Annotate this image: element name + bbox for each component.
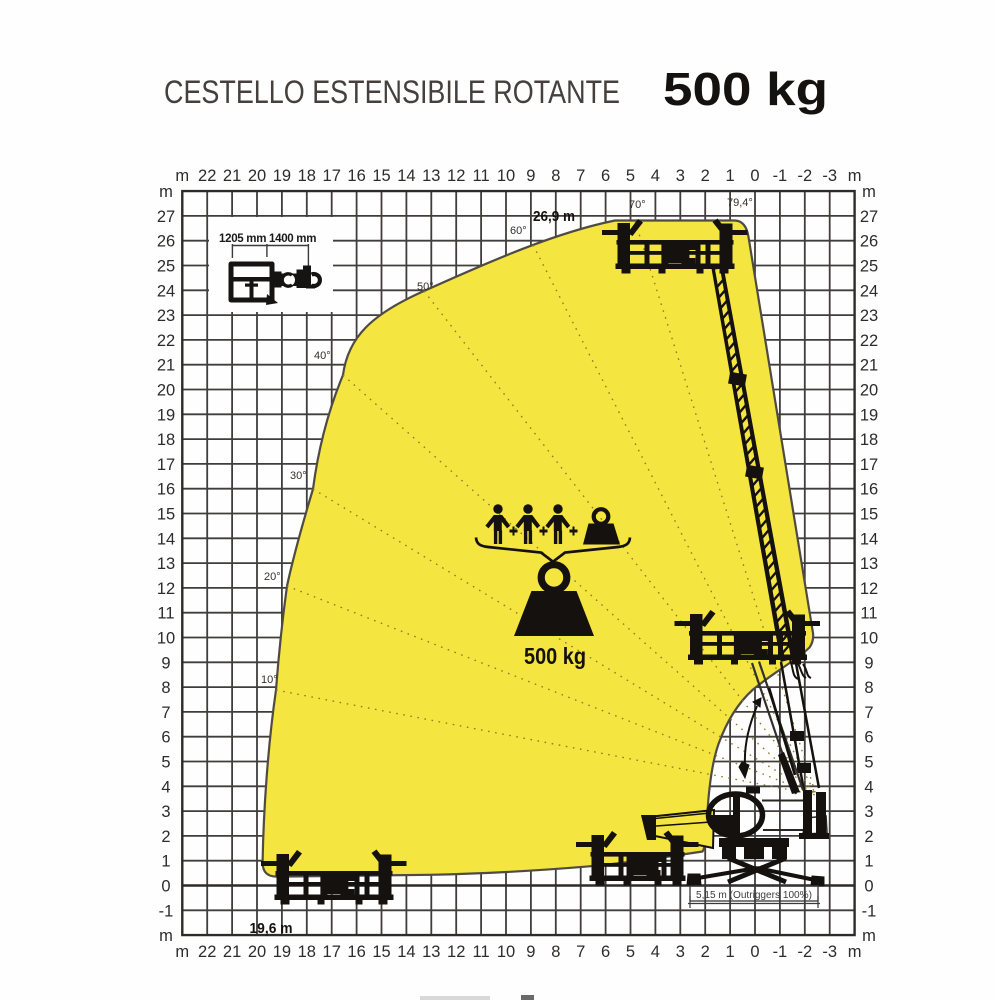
svg-text:m: m <box>175 167 189 185</box>
svg-text:18: 18 <box>298 943 316 961</box>
svg-text:13: 13 <box>860 555 878 573</box>
svg-text:19: 19 <box>860 406 878 424</box>
svg-text:21: 21 <box>223 167 241 185</box>
svg-text:7: 7 <box>576 943 585 961</box>
svg-text:17: 17 <box>157 456 175 474</box>
svg-text:14: 14 <box>397 943 415 961</box>
svg-text:1: 1 <box>726 943 735 961</box>
svg-text:11: 11 <box>473 167 490 185</box>
svg-text:20: 20 <box>860 382 878 400</box>
svg-text:500 kg: 500 kg <box>663 63 828 115</box>
svg-text:22: 22 <box>860 332 878 350</box>
svg-text:4: 4 <box>651 943 660 961</box>
svg-text:4: 4 <box>864 778 873 796</box>
svg-text:5: 5 <box>626 167 635 185</box>
svg-text:m: m <box>862 183 876 201</box>
svg-text:12: 12 <box>447 167 465 185</box>
svg-text:3: 3 <box>676 167 685 185</box>
svg-text:60°: 60° <box>510 225 527 237</box>
svg-text:5: 5 <box>161 754 170 772</box>
svg-text:10: 10 <box>497 943 515 961</box>
svg-text:7: 7 <box>161 704 170 722</box>
svg-text:1: 1 <box>161 853 170 871</box>
svg-text:8: 8 <box>864 679 873 697</box>
svg-text:40°: 40° <box>314 350 331 362</box>
svg-text:25: 25 <box>860 258 878 276</box>
svg-text:8: 8 <box>551 167 560 185</box>
svg-text:21: 21 <box>157 357 175 375</box>
svg-text:11: 11 <box>473 943 490 961</box>
svg-text:3: 3 <box>676 943 685 961</box>
svg-text:21: 21 <box>860 357 878 375</box>
svg-text:m: m <box>848 167 862 185</box>
svg-text:-1: -1 <box>773 943 788 961</box>
svg-text:6: 6 <box>601 167 610 185</box>
svg-text:2: 2 <box>161 828 170 846</box>
svg-text:19: 19 <box>157 406 175 424</box>
svg-text:m: m <box>159 183 173 201</box>
svg-text:20: 20 <box>248 943 266 961</box>
svg-text:5: 5 <box>864 754 873 772</box>
svg-text:10: 10 <box>497 167 515 185</box>
svg-text:9: 9 <box>526 167 535 185</box>
svg-text:21: 21 <box>223 943 241 961</box>
svg-text:0: 0 <box>750 167 759 185</box>
svg-text:0: 0 <box>750 943 759 961</box>
svg-text:23: 23 <box>157 307 175 325</box>
svg-text:1: 1 <box>726 167 735 185</box>
svg-text:-1: -1 <box>773 167 788 185</box>
svg-text:-2: -2 <box>797 167 812 185</box>
svg-text:11: 11 <box>157 605 174 623</box>
svg-text:13: 13 <box>422 943 440 961</box>
svg-text:4: 4 <box>651 167 660 185</box>
svg-text:27: 27 <box>157 208 175 226</box>
svg-text:16: 16 <box>347 943 365 961</box>
svg-text:10: 10 <box>157 630 175 648</box>
svg-text:15: 15 <box>860 506 878 524</box>
svg-text:-3: -3 <box>822 943 837 961</box>
svg-text:19: 19 <box>273 943 291 961</box>
svg-text:30°: 30° <box>290 470 307 482</box>
svg-text:13: 13 <box>157 555 175 573</box>
svg-text:18: 18 <box>860 431 878 449</box>
svg-text:17: 17 <box>323 167 341 185</box>
svg-text:1205 mm 1400 mm: 1205 mm 1400 mm <box>219 233 316 245</box>
svg-text:500 kg: 500 kg <box>524 643 586 669</box>
svg-text:20: 20 <box>248 167 266 185</box>
svg-text:8: 8 <box>551 943 560 961</box>
svg-text:27: 27 <box>860 208 878 226</box>
svg-text:22: 22 <box>198 943 216 961</box>
svg-text:-2: -2 <box>797 943 812 961</box>
svg-text:6: 6 <box>864 729 873 747</box>
svg-text:m: m <box>862 927 876 945</box>
svg-text:-1: -1 <box>862 902 877 920</box>
svg-text:79,4°: 79,4° <box>727 197 753 209</box>
svg-text:2: 2 <box>701 167 710 185</box>
svg-text:-3: -3 <box>822 167 837 185</box>
svg-text:22: 22 <box>198 167 216 185</box>
svg-text:11: 11 <box>860 605 877 623</box>
svg-text:12: 12 <box>157 580 175 598</box>
svg-text:20: 20 <box>157 382 175 400</box>
svg-text:22: 22 <box>157 332 175 350</box>
svg-text:7: 7 <box>576 167 585 185</box>
svg-text:14: 14 <box>397 167 415 185</box>
svg-text:25: 25 <box>157 258 175 276</box>
svg-text:12: 12 <box>860 580 878 598</box>
svg-text:2: 2 <box>864 828 873 846</box>
svg-text:16: 16 <box>157 481 175 499</box>
svg-text:15: 15 <box>372 167 390 185</box>
svg-text:4: 4 <box>161 778 170 796</box>
svg-text:19: 19 <box>273 167 291 185</box>
svg-text:26: 26 <box>157 233 175 251</box>
svg-text:9: 9 <box>864 654 873 672</box>
svg-text:9: 9 <box>526 943 535 961</box>
svg-text:5: 5 <box>626 943 635 961</box>
svg-text:16: 16 <box>347 167 365 185</box>
svg-text:70°: 70° <box>629 199 646 211</box>
svg-text:3: 3 <box>864 803 873 821</box>
svg-text:26,9 m: 26,9 m <box>533 208 575 225</box>
svg-text:0: 0 <box>864 878 873 896</box>
svg-text:17: 17 <box>860 456 878 474</box>
svg-text:26: 26 <box>860 233 878 251</box>
svg-text:-1: -1 <box>159 902 174 920</box>
svg-text:24: 24 <box>157 282 175 300</box>
svg-text:12: 12 <box>447 943 465 961</box>
svg-text:14: 14 <box>860 530 878 548</box>
svg-text:7: 7 <box>864 704 873 722</box>
svg-text:m: m <box>848 943 862 961</box>
svg-text:18: 18 <box>157 431 175 449</box>
svg-text:6: 6 <box>601 943 610 961</box>
svg-text:10°: 10° <box>261 674 278 686</box>
svg-text:50°: 50° <box>417 281 434 293</box>
svg-text:0: 0 <box>161 878 170 896</box>
svg-text:9: 9 <box>161 654 170 672</box>
svg-text:18: 18 <box>298 167 316 185</box>
svg-text:3: 3 <box>161 803 170 821</box>
svg-text:16: 16 <box>860 481 878 499</box>
svg-text:14: 14 <box>157 530 175 548</box>
svg-text:m: m <box>175 943 189 961</box>
svg-text:20°: 20° <box>264 571 281 583</box>
svg-text:10: 10 <box>860 630 878 648</box>
svg-text:1: 1 <box>864 853 873 871</box>
svg-text:8: 8 <box>161 679 170 697</box>
svg-text:m: m <box>159 927 173 945</box>
svg-text:5,15 m (Outriggers 100%): 5,15 m (Outriggers 100%) <box>696 890 812 901</box>
svg-text:13: 13 <box>422 167 440 185</box>
svg-text:6: 6 <box>161 729 170 747</box>
svg-text:15: 15 <box>372 943 390 961</box>
svg-text:CESTELLO ESTENSIBILE ROTANTE: CESTELLO ESTENSIBILE ROTANTE <box>164 74 620 110</box>
svg-text:23: 23 <box>860 307 878 325</box>
svg-text:17: 17 <box>323 943 341 961</box>
svg-text:2: 2 <box>701 943 710 961</box>
svg-text:19,6 m: 19,6 m <box>250 920 293 937</box>
svg-text:15: 15 <box>157 506 175 524</box>
svg-text:24: 24 <box>860 282 878 300</box>
